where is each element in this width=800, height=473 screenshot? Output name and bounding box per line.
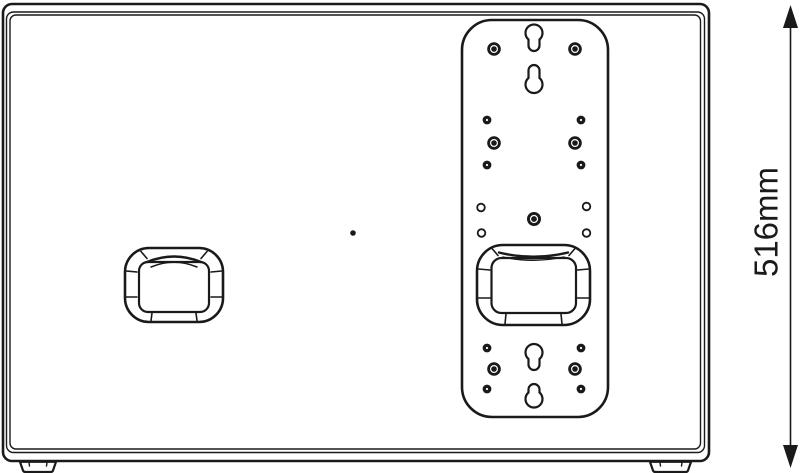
technical-drawing: 516mm xyxy=(0,0,800,473)
rivet xyxy=(577,385,586,394)
screw xyxy=(568,42,582,56)
foot-left xyxy=(20,462,56,472)
screw xyxy=(487,362,501,376)
keyhole-slot-top-up xyxy=(526,65,543,93)
rivet xyxy=(577,344,586,353)
screw xyxy=(527,212,541,226)
pilot-hole xyxy=(477,204,485,212)
foot-left-notch xyxy=(47,463,48,467)
arrow-down-icon xyxy=(783,445,798,468)
foot-left-notch xyxy=(29,463,30,467)
keyhole-slot-bottom-down xyxy=(526,344,543,370)
rivet xyxy=(483,116,492,125)
rivet xyxy=(577,116,586,125)
screw xyxy=(487,136,501,150)
screw xyxy=(568,136,582,150)
left-handle xyxy=(125,248,223,322)
cabinet-feet xyxy=(20,462,691,472)
dimension-line xyxy=(783,5,798,468)
right-handle xyxy=(477,245,590,325)
arrow-up-icon xyxy=(783,5,798,28)
pilot-hole xyxy=(478,229,486,237)
keyhole-slot-bottom-up xyxy=(526,384,543,407)
keyhole-slot-top-down xyxy=(526,25,543,51)
rivet xyxy=(483,161,492,170)
mounting-plate xyxy=(462,20,608,417)
rivet xyxy=(577,161,586,170)
panel-dot xyxy=(350,230,356,236)
rivet xyxy=(483,344,492,353)
foot-right-notch xyxy=(660,463,661,467)
rivet xyxy=(483,385,492,394)
foot-right-notch xyxy=(682,463,683,467)
pilot-hole xyxy=(583,203,591,211)
screw xyxy=(568,362,582,376)
drawing-canvas xyxy=(0,0,800,473)
screw xyxy=(487,42,501,56)
pilot-hole xyxy=(583,229,591,237)
foot-right xyxy=(650,462,691,472)
dimension-label: 516mm xyxy=(750,167,783,277)
